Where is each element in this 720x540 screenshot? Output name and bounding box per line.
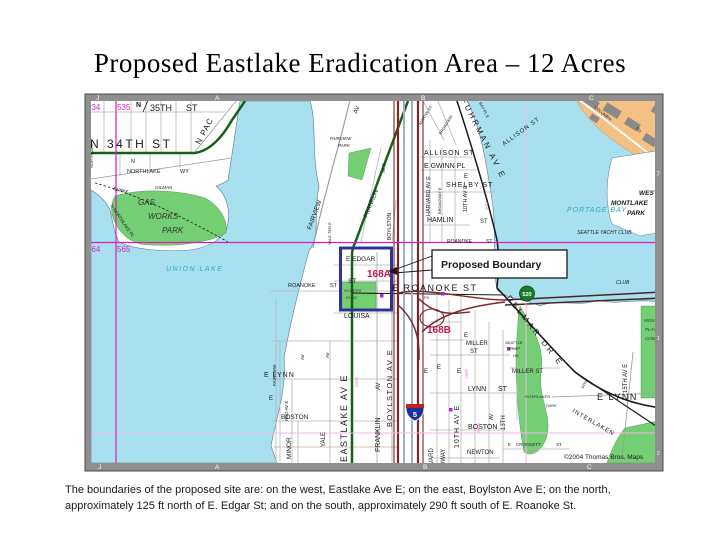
map-label: E ROANOKE ST: [392, 283, 478, 293]
map-label: E GWINN PL: [424, 163, 465, 170]
flag-icon: [449, 408, 453, 412]
map-label: HARVARD: [429, 448, 435, 477]
map-label: UNION LAKE: [166, 266, 223, 273]
map-label: AV: [325, 352, 330, 358]
map-label: ST: [556, 442, 562, 447]
map-label: BROADWAY E: [437, 187, 442, 214]
map-label: ST: [470, 349, 478, 355]
boundary-description: The boundaries of the proposed site are:…: [65, 482, 671, 514]
map-label: LOUISA: [344, 313, 370, 320]
map-label: ST: [486, 239, 492, 245]
map-label: AV: [376, 382, 382, 390]
map-label: PREP: [509, 346, 520, 351]
map-label: 10TH AV E: [454, 405, 461, 448]
map-label: 1: [657, 336, 660, 342]
map-label: ©2004 Thomas Bros. Maps: [564, 453, 644, 461]
map-label: E: [424, 369, 428, 375]
map-label: PARK: [627, 210, 646, 217]
map-label: 10TH AV E: [463, 185, 469, 212]
map-label: E: [508, 442, 511, 447]
map-label: N: [131, 159, 135, 165]
map-label: ROGERS: [344, 288, 362, 293]
map-label: 5: [413, 410, 417, 419]
map-label: PARK: [162, 226, 184, 235]
map-label: GILMAN: [155, 185, 173, 190]
map-label: PARK: [338, 143, 351, 148]
map-label: EASTLAKE AV E: [339, 374, 349, 462]
map-label: RED AV E: [284, 401, 289, 421]
map-label: E: [464, 174, 468, 180]
map-label: E: [269, 396, 273, 402]
map-label: J: [98, 464, 101, 471]
map-label: ST: [348, 278, 356, 285]
map-label: MINOR: [286, 437, 293, 459]
map-label: MILLER ST: [512, 369, 543, 375]
map-label: CLUB: [616, 280, 630, 286]
map-label: ST: [480, 219, 488, 225]
map-label: B: [421, 95, 425, 102]
map-label: SEATTLE: [505, 340, 523, 345]
map-label: 300: [484, 202, 489, 210]
map-label: 35TH: [150, 103, 172, 113]
map-label: INTERLAKEN: [525, 394, 550, 399]
map-label: AV E: [381, 163, 386, 173]
map-label: BOSTON: [468, 424, 497, 431]
map-label: YALE TER E: [327, 222, 332, 245]
map-label: A: [215, 464, 220, 471]
map-label: 565: [117, 245, 131, 254]
map-label: FRANKLIN: [375, 417, 382, 452]
map-label: E LYNN: [264, 372, 295, 379]
map-label: 2: [657, 451, 660, 457]
map-label: ALLISON ST: [424, 150, 474, 157]
map-label: CROCKETT: [516, 442, 541, 447]
caption-line-1: The boundaries of the proposed site are:…: [65, 482, 671, 498]
map-label: SHELBY ST: [446, 182, 493, 189]
callout-box: Proposed Boundary: [432, 250, 567, 278]
map-label: LYNN: [468, 386, 486, 393]
map-label: 520: [522, 292, 531, 298]
map-label: 15TH AV E: [623, 364, 629, 393]
map-label: AV: [489, 413, 495, 420]
map-label: C: [589, 95, 594, 102]
map-label: NORTHLAKE: [127, 169, 161, 175]
map-label: N 34TH ST: [90, 137, 173, 151]
map-label: E: [457, 369, 461, 375]
map-label: B: [423, 464, 427, 471]
map-label: ST: [330, 283, 338, 289]
map-label: N: [136, 102, 141, 109]
map-label: E: [437, 365, 441, 371]
map-label: PLGD: [346, 295, 357, 300]
map-label: 168B: [427, 325, 451, 336]
map-label: HAMLIN: [427, 217, 453, 224]
map-label: E EDGAR: [346, 256, 376, 263]
caption-line-2: approximately 125 ft north of E. Edgar S…: [65, 498, 671, 514]
map-label: 535: [117, 103, 131, 112]
map-label: WY: [180, 169, 189, 175]
map-label: SEATTLE YACHT CLUB: [577, 230, 632, 236]
map-canvas: Proposed Boundary 53453556456535THSTNN 3…: [87, 95, 670, 483]
map-figure: Proposed Boundary 53453556456535THSTNN 3…: [0, 0, 720, 540]
map-label: FAIRVIEW: [330, 136, 352, 141]
map-label: MONTLAKE: [611, 200, 648, 207]
map-label: PARK: [546, 403, 557, 408]
map-label: A: [215, 95, 220, 102]
map-label: BOYLSTON: [387, 212, 393, 240]
flag-icon: [380, 294, 384, 298]
map-label: FAIRVIEW: [272, 364, 277, 386]
map-label: HARVARD AV E: [426, 176, 432, 216]
map-label: ST: [186, 103, 198, 113]
map-label: E LYNN: [597, 392, 638, 402]
slide: { "title": "Proposed Eastlake Eradicatio…: [0, 0, 720, 540]
map-label: 2900: [476, 422, 481, 433]
map-label: ROANOKE: [288, 283, 316, 289]
map-label: HS: [513, 353, 519, 358]
map-label: PORTAGE BAY: [567, 207, 627, 214]
map-label: YALE: [321, 432, 327, 447]
callout-label: Proposed Boundary: [441, 259, 542, 271]
map-label: C: [587, 464, 592, 471]
map-label: ST: [498, 386, 508, 393]
map-label: WORKS: [148, 212, 179, 221]
map-label: E: [464, 333, 468, 339]
map-label: 13TH: [501, 415, 507, 430]
map-label: 168A: [367, 269, 391, 280]
map-label: FS: [424, 296, 429, 300]
map-label: 2800: [464, 368, 469, 379]
map-label: MILLER: [466, 341, 488, 347]
map-label: J: [96, 95, 99, 102]
map-label: ROANOKE: [447, 239, 473, 245]
map-label: NEWTON: [467, 450, 494, 456]
map-label: AV: [300, 354, 305, 360]
map-label: GAS: [138, 198, 156, 207]
map-label: 2500: [354, 376, 359, 387]
map-label: BOYLSTON AV E: [385, 349, 394, 427]
